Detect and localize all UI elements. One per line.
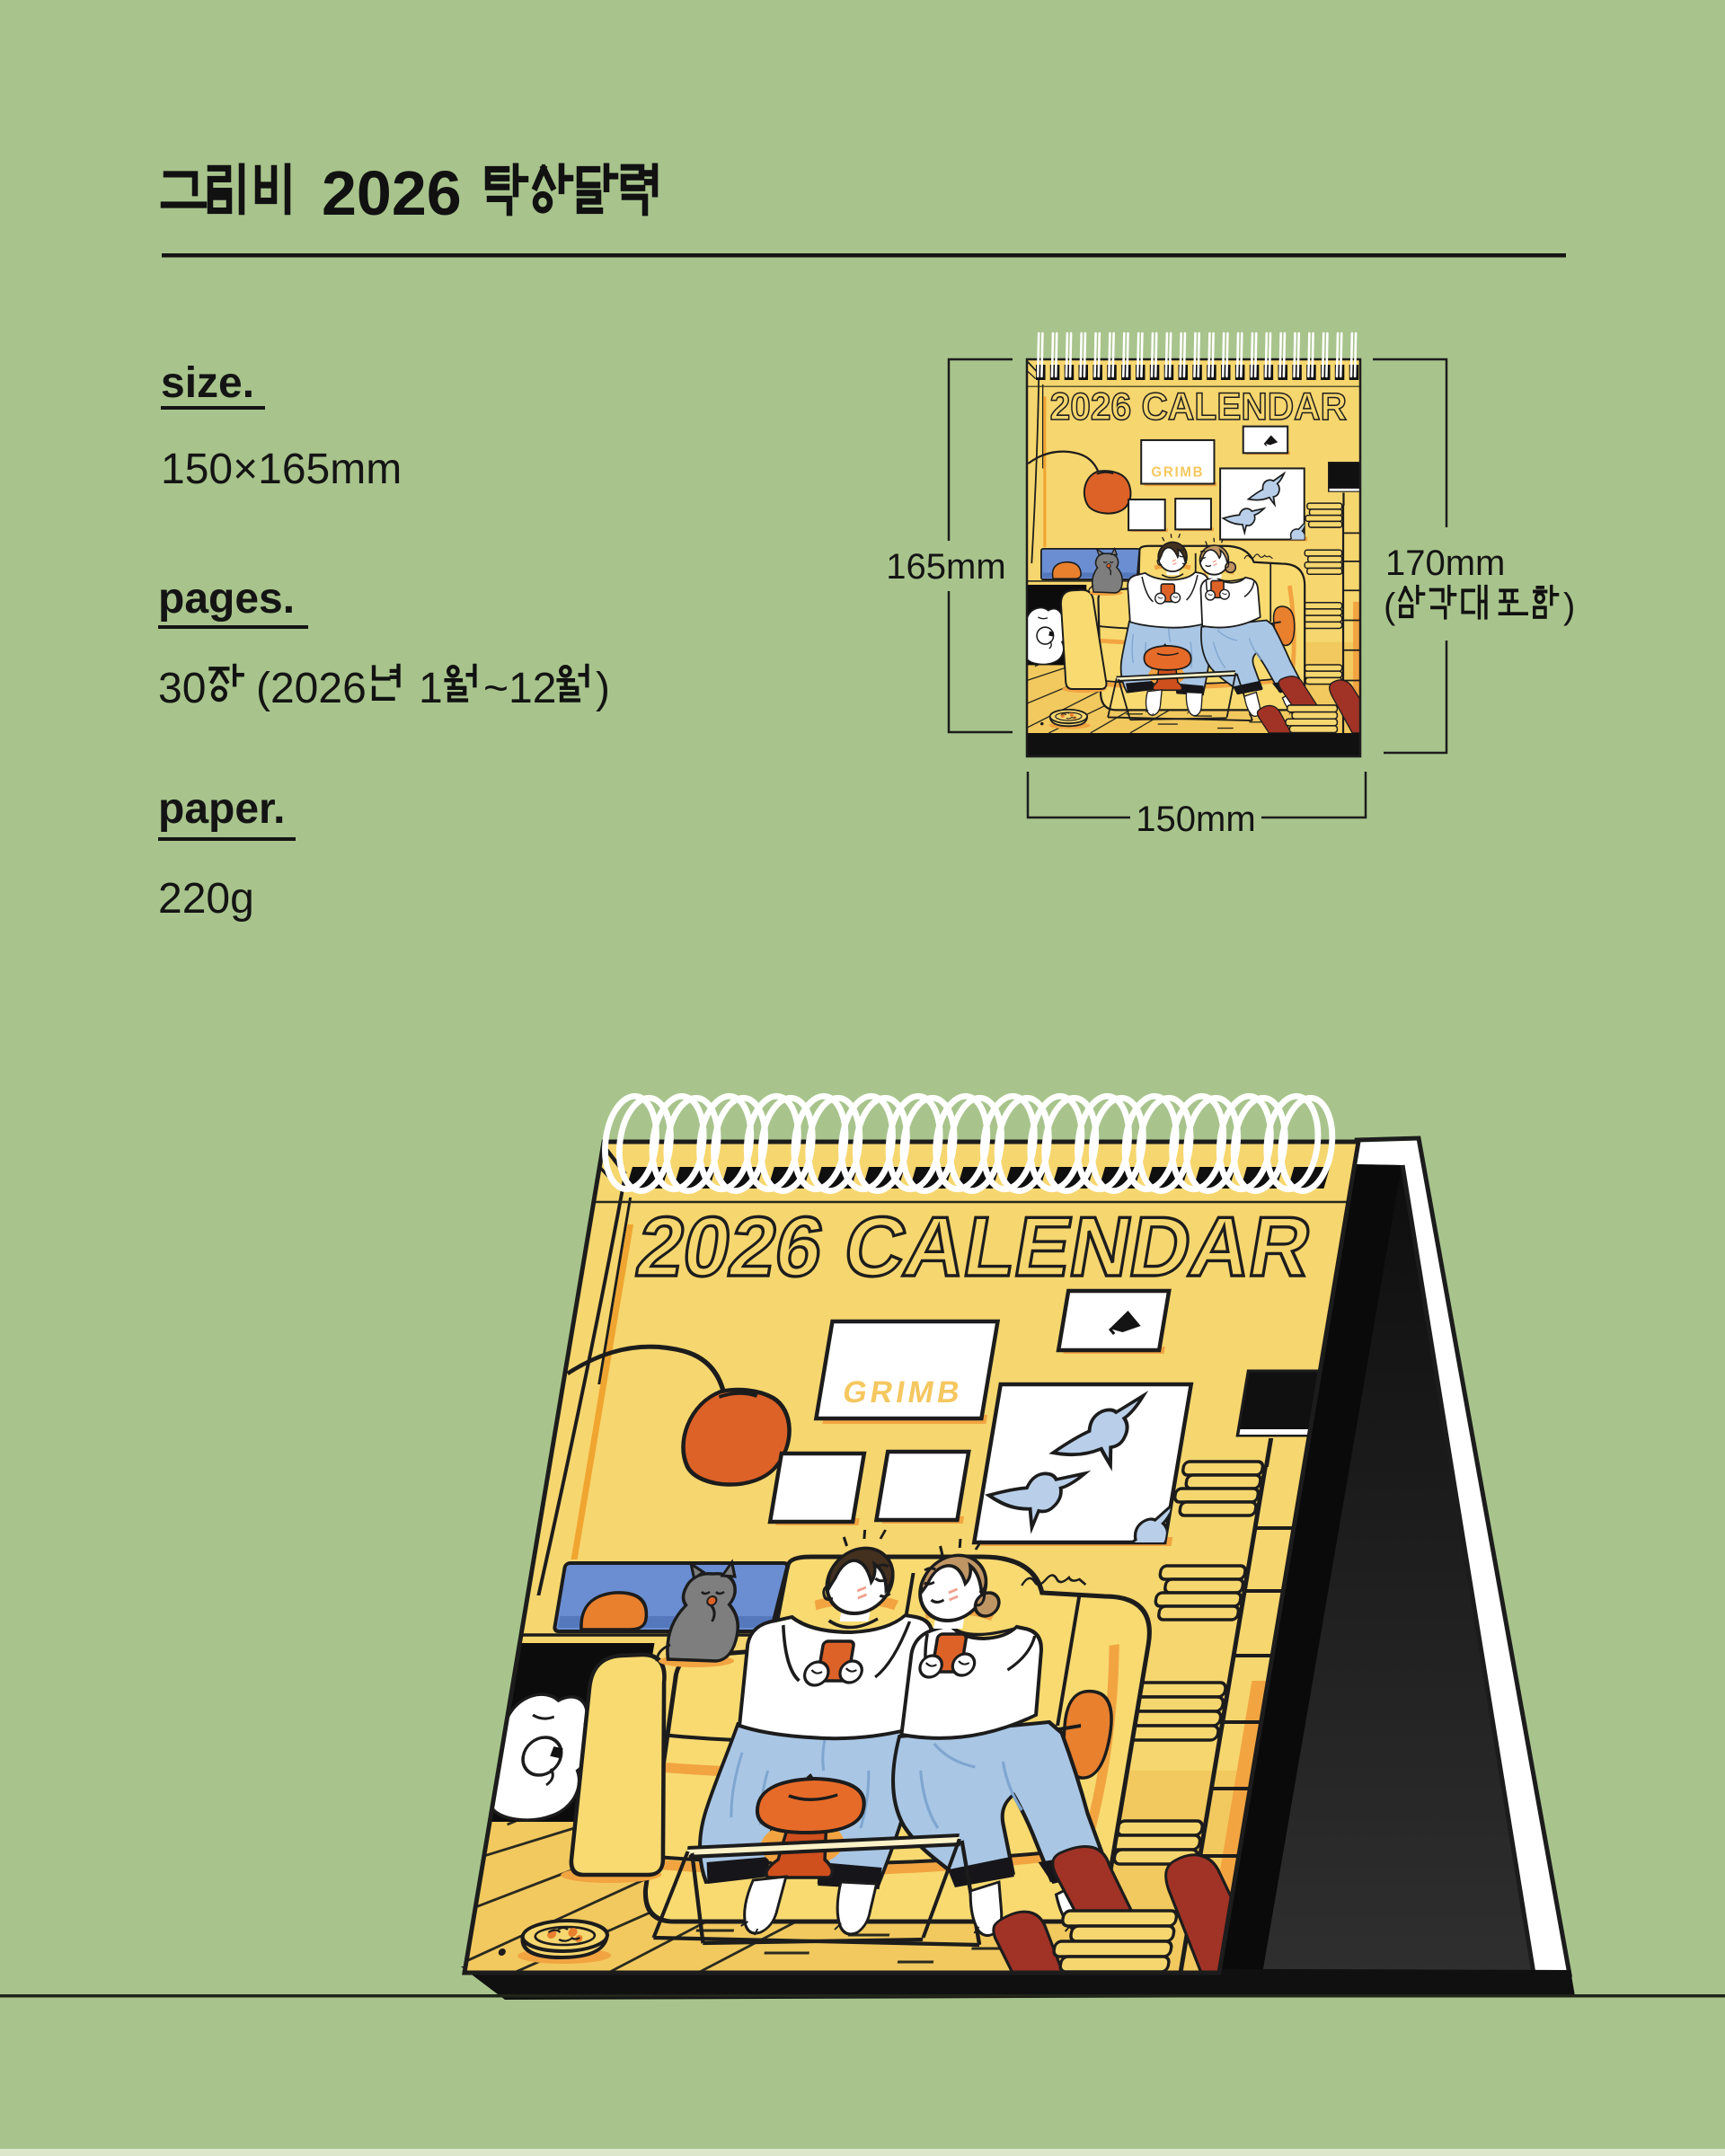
svg-text:150mm: 150mm — [1136, 800, 1255, 839]
svg-text:2026: 2026 — [322, 158, 462, 228]
svg-text:paper.: paper. — [158, 785, 285, 833]
svg-text:~12: ~12 — [483, 665, 556, 712]
svg-text:165mm: 165mm — [886, 547, 1005, 587]
svg-text:): ) — [1563, 587, 1575, 626]
svg-text:170mm: 170mm — [1385, 543, 1505, 583]
svg-text:220g: 220g — [158, 875, 254, 923]
svg-text:(: ( — [1384, 587, 1396, 626]
svg-text:size.: size. — [161, 359, 254, 407]
svg-text:pages.: pages. — [158, 575, 295, 623]
svg-text:(2026: (2026 — [256, 665, 367, 712]
svg-text:): ) — [596, 665, 610, 712]
svg-text:30: 30 — [158, 665, 206, 712]
svg-text:1: 1 — [419, 665, 443, 712]
svg-text:150×165mm: 150×165mm — [161, 446, 402, 493]
